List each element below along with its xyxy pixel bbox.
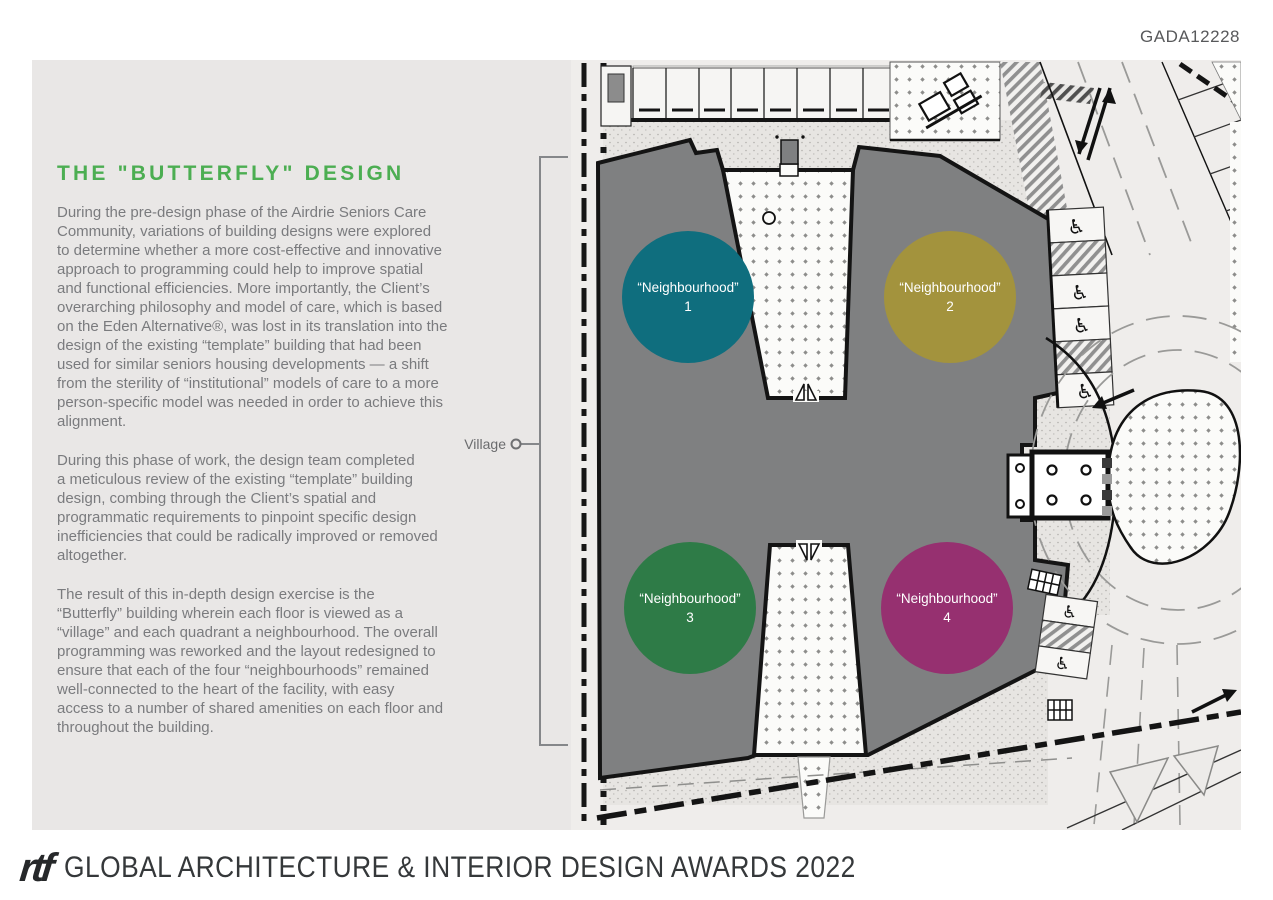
neighbourhood-label: “Neighbourhood”: [637, 279, 738, 297]
neighbourhood-number: 4: [943, 609, 951, 627]
board-panel: ♿ ♿ ♿ ♿: [32, 60, 1241, 830]
village-bracket: [512, 157, 569, 745]
neighbourhood-circle-3: “Neighbourhood” 3: [624, 542, 756, 674]
neighbourhood-circle-4: “Neighbourhood” 4: [881, 542, 1013, 674]
village-label: Village: [436, 436, 506, 452]
paragraph: During this phase of work, the design te…: [57, 451, 512, 565]
neighbourhood-label: “Neighbourhood”: [639, 590, 740, 608]
neighbourhood-label: “Neighbourhood”: [899, 279, 1000, 297]
neighbourhood-number: 1: [684, 298, 692, 316]
exit-path: [798, 757, 830, 818]
article-column: THE "BUTTERFLY" DESIGN During the pre-de…: [57, 162, 512, 757]
village-marker-icon: [512, 440, 521, 449]
svg-text:♿: ♿: [1054, 653, 1072, 675]
patio-terrace: [890, 62, 1000, 140]
courtyard-fixture-icon: [763, 212, 775, 224]
footer: rtf GLOBAL ARCHITECTURE & INTERIOR DESIG…: [20, 842, 964, 894]
submission-code: GADA12228: [1140, 27, 1240, 47]
page-title: THE "BUTTERFLY" DESIGN: [57, 162, 512, 186]
presentation-board: GADA12228: [0, 0, 1273, 900]
neighbourhood-number: 2: [946, 298, 954, 316]
paragraph: The result of this in-depth design exerc…: [57, 585, 512, 737]
svg-text:♿: ♿: [1070, 280, 1089, 305]
neighbourhood-circle-1: “Neighbourhood” 1: [622, 231, 754, 363]
svg-text:♿: ♿: [1067, 214, 1086, 239]
svg-text:♿: ♿: [1061, 602, 1079, 624]
accessible-parking: ♿ ♿ ♿ ♿: [1047, 207, 1113, 408]
accessible-parking: ♿ ♿: [1035, 594, 1097, 678]
rtf-logo: rtf: [18, 846, 53, 891]
neighbourhood-circle-2: “Neighbourhood” 2: [884, 231, 1016, 363]
entrance-canopy: [1008, 452, 1112, 518]
neighbourhood-label: “Neighbourhood”: [896, 590, 997, 608]
parking-lot: [601, 66, 930, 126]
courtyard-bottom: [754, 540, 866, 755]
paragraph: During the pre-design phase of the Airdr…: [57, 203, 512, 431]
neighbourhood-number: 3: [686, 609, 694, 627]
svg-text:♿: ♿: [1072, 313, 1091, 338]
awards-title: GLOBAL ARCHITECTURE & INTERIOR DESIGN AW…: [64, 851, 856, 885]
